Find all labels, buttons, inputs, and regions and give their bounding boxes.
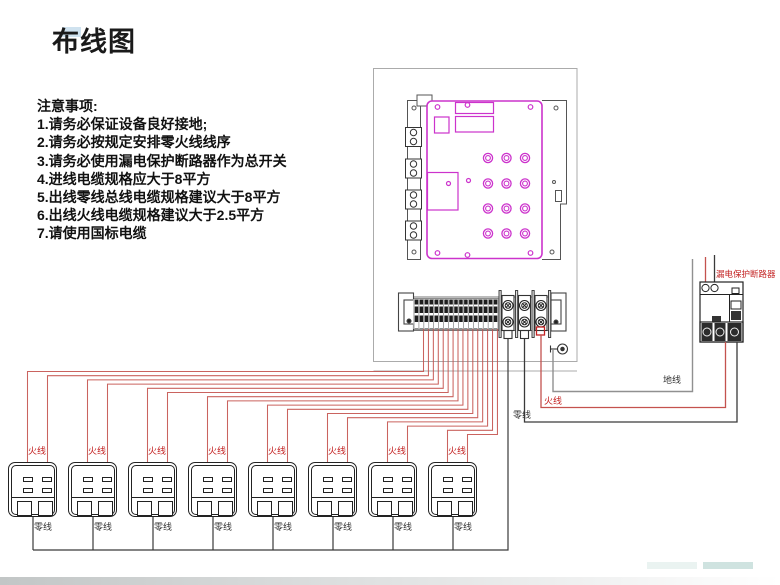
socket-slot bbox=[143, 477, 153, 483]
socket-slot bbox=[443, 488, 453, 494]
socket-slot bbox=[342, 477, 352, 483]
socket-live-label: 火线 bbox=[148, 446, 166, 456]
socket-live-wire bbox=[148, 329, 444, 462]
wall-socket bbox=[248, 462, 297, 517]
socket-live-wire bbox=[288, 329, 468, 462]
socket-faceplate bbox=[251, 465, 295, 515]
ground-wire bbox=[553, 259, 693, 392]
socket-live-label: 火线 bbox=[268, 446, 286, 456]
socket-slot bbox=[383, 477, 393, 483]
socket-divider bbox=[252, 497, 294, 498]
socket-live-label: 火线 bbox=[328, 446, 346, 456]
socket-live-wire bbox=[48, 329, 429, 462]
wall-socket bbox=[368, 462, 417, 517]
socket-slot bbox=[402, 488, 412, 494]
socket-slot bbox=[462, 477, 472, 483]
socket-live-wire bbox=[168, 329, 449, 462]
socket-slot bbox=[102, 488, 112, 494]
socket-switch bbox=[437, 501, 452, 516]
live-wire-label: 火线 bbox=[544, 396, 562, 406]
socket-neutral-label: 零线 bbox=[214, 522, 232, 532]
socket-slot bbox=[443, 477, 453, 483]
socket-slot bbox=[282, 488, 292, 494]
socket-live-wire bbox=[108, 329, 439, 462]
panel-faceplate bbox=[427, 101, 542, 259]
wiring-diagram-slide: 布线图 注意事项: 1.请务必保证设备良好接地; 2.请务必按规定安排零火线线序… bbox=[0, 0, 780, 585]
main-terminal-poles bbox=[499, 291, 551, 339]
socket-live-wire bbox=[208, 329, 454, 462]
footer-accent-strip bbox=[703, 562, 753, 569]
socket-live-wire bbox=[88, 329, 434, 462]
socket-slot bbox=[83, 488, 93, 494]
socket-switch bbox=[137, 501, 152, 516]
socket-neutral-label: 零线 bbox=[454, 522, 472, 532]
neutral-terminal-block bbox=[414, 299, 498, 329]
ground-wire-label: 地线 bbox=[663, 375, 681, 385]
socket-divider bbox=[312, 497, 354, 498]
socket-live-label: 火线 bbox=[448, 446, 466, 456]
socket-slot bbox=[263, 477, 273, 483]
socket-neutral-label: 零线 bbox=[394, 522, 412, 532]
neutral-bus-wire bbox=[33, 339, 508, 551]
socket-slot bbox=[83, 477, 93, 483]
socket-switch bbox=[77, 501, 92, 516]
socket-neutral-label: 零线 bbox=[334, 522, 352, 532]
socket-slot bbox=[323, 477, 333, 483]
socket-slot bbox=[222, 477, 232, 483]
socket-live-wire bbox=[328, 329, 473, 462]
socket-slot bbox=[263, 488, 273, 494]
socket-faceplate bbox=[11, 465, 55, 515]
socket-neutral-label: 零线 bbox=[94, 522, 112, 532]
socket-live-wire bbox=[448, 329, 493, 462]
wall-socket bbox=[428, 462, 477, 517]
wall-socket bbox=[128, 462, 177, 517]
wall-socket bbox=[308, 462, 357, 517]
wall-socket bbox=[8, 462, 57, 517]
control-panel-drawing bbox=[406, 95, 567, 260]
socket-slot bbox=[102, 477, 112, 483]
breaker-bottom-terminals bbox=[702, 323, 742, 341]
socket-divider bbox=[432, 497, 474, 498]
neutral-wire-to-breaker bbox=[525, 339, 738, 423]
socket-slot bbox=[383, 488, 393, 494]
socket-neutral-label: 零线 bbox=[274, 522, 292, 532]
socket-slot bbox=[23, 488, 33, 494]
socket-divider bbox=[12, 497, 54, 498]
socket-switch bbox=[458, 501, 473, 516]
socket-switch bbox=[158, 501, 173, 516]
socket-slot bbox=[222, 488, 232, 494]
socket-live-label: 火线 bbox=[208, 446, 226, 456]
socket-slot bbox=[203, 488, 213, 494]
socket-switch bbox=[317, 501, 332, 516]
socket-slot bbox=[162, 488, 172, 494]
socket-slot bbox=[462, 488, 472, 494]
socket-switch bbox=[257, 501, 272, 516]
socket-slot bbox=[402, 477, 412, 483]
socket-switch bbox=[398, 501, 413, 516]
socket-switch bbox=[197, 501, 212, 516]
socket-switch bbox=[17, 501, 32, 516]
socket-faceplate bbox=[371, 465, 415, 515]
socket-switch bbox=[98, 501, 113, 516]
socket-faceplate bbox=[311, 465, 355, 515]
footer-accent-strip bbox=[647, 562, 697, 569]
socket-slot bbox=[42, 477, 52, 483]
socket-switch bbox=[377, 501, 392, 516]
socket-slot bbox=[162, 477, 172, 483]
socket-faceplate bbox=[71, 465, 115, 515]
socket-switch bbox=[278, 501, 293, 516]
socket-slot bbox=[203, 477, 213, 483]
socket-faceplate bbox=[131, 465, 175, 515]
socket-live-label: 火线 bbox=[28, 446, 46, 456]
socket-divider bbox=[132, 497, 174, 498]
socket-slot bbox=[143, 488, 153, 494]
socket-divider bbox=[72, 497, 114, 498]
neutral-wire-label: 零线 bbox=[513, 410, 531, 420]
footer-gradient-bar bbox=[0, 577, 780, 585]
socket-slot bbox=[23, 477, 33, 483]
socket-live-label: 火线 bbox=[88, 446, 106, 456]
socket-slot bbox=[342, 488, 352, 494]
panel-right-bracket bbox=[542, 101, 567, 260]
socket-switch bbox=[338, 501, 353, 516]
socket-neutral-label: 零线 bbox=[154, 522, 172, 532]
socket-faceplate bbox=[191, 465, 235, 515]
socket-live-label: 火线 bbox=[388, 446, 406, 456]
socket-divider bbox=[192, 497, 234, 498]
wall-socket bbox=[68, 462, 117, 517]
socket-neutral-label: 零线 bbox=[34, 522, 52, 532]
breaker-label: 漏电保护断路器 bbox=[716, 268, 776, 280]
socket-slot bbox=[323, 488, 333, 494]
socket-switch bbox=[38, 501, 53, 516]
socket-faceplate bbox=[431, 465, 475, 515]
socket-live-wire bbox=[28, 329, 424, 462]
socket-divider bbox=[372, 497, 414, 498]
wall-socket bbox=[188, 462, 237, 517]
socket-switch bbox=[218, 501, 233, 516]
socket-slot bbox=[282, 477, 292, 483]
socket-slot bbox=[42, 488, 52, 494]
